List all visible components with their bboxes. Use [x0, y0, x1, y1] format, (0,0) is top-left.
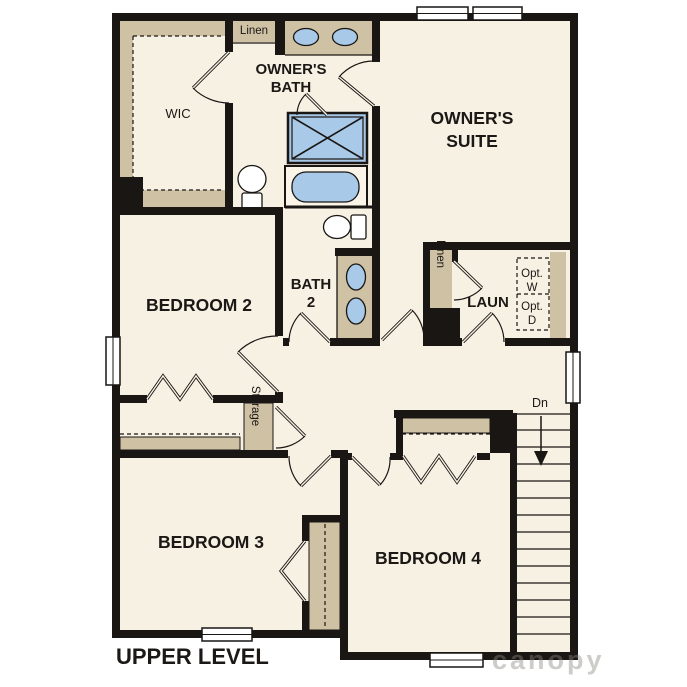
watermark: canopy: [492, 645, 605, 675]
wall-bath2-vanity-stub: [335, 248, 375, 256]
wall-bedroom4-closet-top: [394, 410, 513, 418]
wall-bedroom2-closet-right: [213, 395, 283, 403]
bedroom2-label: BEDROOM 2: [146, 295, 252, 315]
wall-bath2-bottom-right: [330, 338, 378, 346]
wall-bedroom2-bath2: [275, 215, 283, 336]
wall-linen-vanity: [275, 21, 285, 55]
wall-chase-mass: [490, 418, 513, 453]
owners-bath-label-line2: BATH: [271, 79, 312, 96]
wall-bedroom4-door-stub-left: [348, 453, 352, 460]
wall-bedroom4-left: [340, 453, 348, 660]
wall-laundry-bottom-left: [452, 338, 462, 346]
floorplan-drawing: WIC OWNER'S BATH Linen OWNER'S SUITE BED…: [0, 0, 687, 687]
opt-dryer-label-line2: D: [528, 315, 536, 327]
stairs-down-label: Dn: [532, 396, 548, 410]
opt-washer-label-line1: Opt.: [521, 268, 543, 280]
wall-wic-bedroom2: [112, 207, 283, 215]
owners-suite-label-line1: OWNER'S: [431, 108, 514, 128]
wall-alcove-right: [423, 250, 430, 310]
bath2-label-line2: 2: [307, 294, 315, 311]
wall-wic-corner-block: [112, 177, 143, 207]
bedroom2-closet-shelf: [120, 437, 240, 450]
wall-exterior-right: [570, 13, 578, 660]
bath2-toilet-tank: [351, 215, 366, 239]
bath2-toilet-icon: [324, 216, 351, 239]
wall-laundry-bottom-right: [505, 338, 578, 346]
opt-dryer-label-line1: Opt.: [521, 301, 543, 313]
linen-hall-label: Linen: [434, 240, 446, 268]
wall-stairs-left: [510, 413, 517, 660]
page-title: UPPER LEVEL: [116, 644, 269, 669]
wall-bedroom4-closet-stub: [477, 453, 490, 460]
wic-shelf-top: [120, 21, 225, 36]
owners-sink-right-icon: [333, 29, 358, 46]
wall-bath-suite-lower: [372, 106, 380, 346]
wall-wic-bath-upper: [225, 13, 233, 52]
owners-toilet-icon: [238, 166, 266, 193]
wall-bedroom4-door-stub-right: [390, 453, 403, 460]
wall-bedroom3-closet-stub-upper: [302, 515, 309, 541]
bedroom4-label: BEDROOM 4: [375, 548, 481, 568]
wall-bedroom2-closet-left: [112, 395, 147, 403]
wall-bath2-bottom-left: [283, 338, 289, 346]
wall-bath-suite-upper: [372, 13, 380, 62]
owners-toilet-tank: [242, 193, 262, 209]
wall-exterior-left: [112, 13, 120, 638]
bedroom3-label: BEDROOM 3: [158, 532, 264, 552]
wic-shelf-bottom: [133, 190, 225, 207]
owners-bath-label-line1: OWNER'S: [255, 61, 326, 78]
opt-washer-label-line2: W: [527, 282, 538, 294]
wall-bedroom3-closet-stub-lower: [302, 601, 309, 630]
owners-suite-label-line2: SUITE: [446, 131, 498, 151]
bath2-sink-top-icon: [347, 264, 366, 290]
owners-sink-left-icon: [294, 29, 319, 46]
floorplan-page: WIC OWNER'S BATH Linen OWNER'S SUITE BED…: [0, 0, 687, 687]
bath2-sink-bottom-icon: [347, 298, 366, 324]
wall-wic-bath-lower: [225, 103, 233, 215]
wall-bedroom3-top-stub: [331, 450, 348, 458]
bathtub-icon: [292, 172, 359, 202]
laundry-counter: [550, 252, 566, 338]
bath2-label-line1: BATH: [291, 276, 332, 293]
wall-bedroom4-closet-left: [396, 418, 403, 453]
wall-bedroom3-top: [112, 450, 288, 458]
wic-label: WIC: [165, 106, 190, 121]
bedroom4-closet-shelf: [402, 418, 490, 433]
storage-label: Storage: [249, 386, 261, 426]
laundry-label: LAUN: [467, 294, 509, 311]
linen-bath-label: Linen: [240, 25, 268, 37]
